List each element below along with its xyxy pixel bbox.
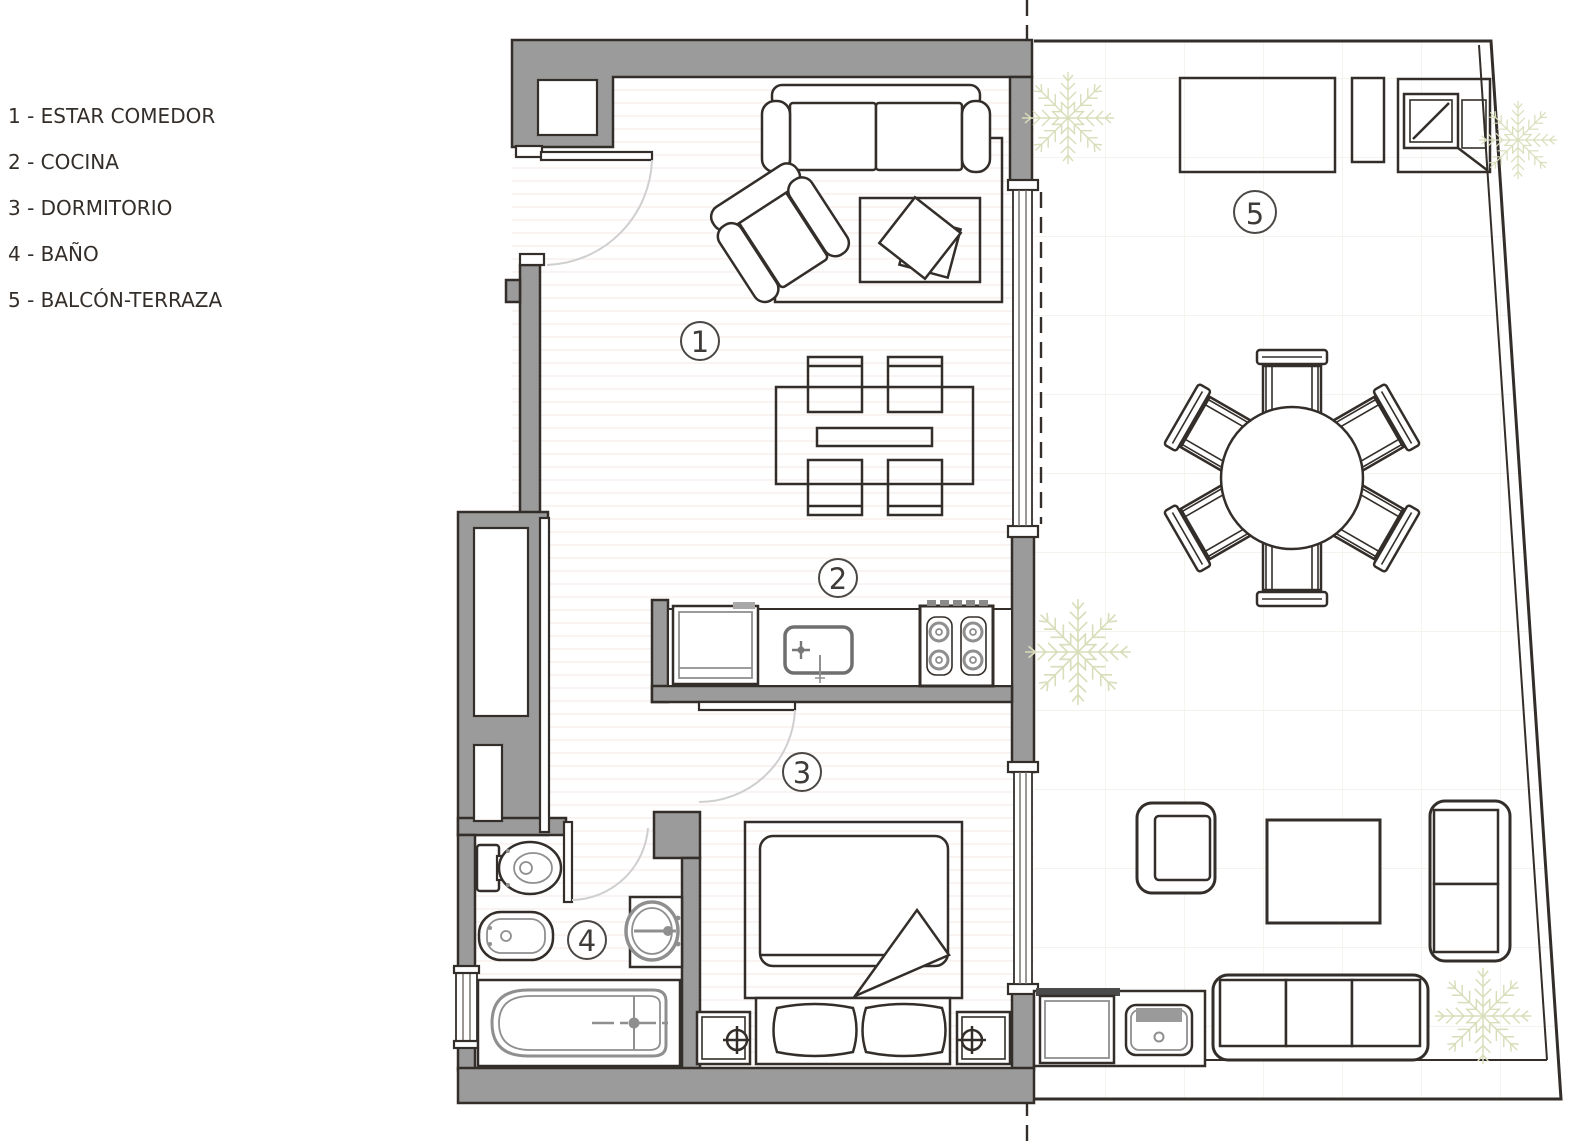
room-label-balcon-terraza: 5 [1234, 191, 1276, 233]
lounge-loveseat [1430, 801, 1510, 961]
wall-niche [538, 80, 597, 135]
floor-plan-page: 1 - ESTAR COMEDOR 2 - COCINA 3 - DORMITO… [0, 0, 1579, 1146]
room-label-estar-comedor: 1 [681, 322, 719, 360]
svg-text:1: 1 [691, 325, 709, 359]
outdoor-counter [1034, 988, 1205, 1066]
stove [920, 600, 993, 686]
nightstand-right [957, 1012, 1010, 1064]
room-label-dormitorio: 3 [783, 753, 821, 791]
bidet [479, 912, 553, 960]
toilet [477, 842, 561, 894]
fridge [673, 602, 758, 684]
plant-icon [1435, 968, 1532, 1065]
svg-text:4: 4 [578, 924, 596, 958]
bed [745, 822, 962, 1064]
outdoor-sink [1126, 1005, 1192, 1055]
svg-text:2: 2 [829, 562, 847, 596]
lounge-table [1267, 820, 1380, 923]
fridge-handle [733, 602, 755, 609]
sofa [762, 85, 990, 172]
bathroom-sink [626, 897, 682, 967]
plant-icon [1479, 101, 1557, 179]
kitchen-counter [668, 600, 1012, 686]
svg-text:5: 5 [1246, 197, 1264, 231]
bathroom-window [454, 966, 479, 1048]
lounge-armchair [1137, 803, 1215, 893]
floor-plan-drawing: 1 2 3 4 5 [0, 0, 1579, 1146]
nightstand-left [697, 1012, 751, 1064]
room-label-cocina: 2 [819, 559, 857, 597]
bathtub [478, 980, 680, 1066]
kitchen-sink [785, 627, 852, 683]
lounge-sofa [1213, 975, 1428, 1060]
plant-icon [1022, 72, 1114, 164]
room-label-bano: 4 [568, 921, 606, 959]
plant-icon [1025, 599, 1131, 705]
svg-text:3: 3 [793, 756, 811, 790]
patio-round-table [1221, 407, 1363, 549]
